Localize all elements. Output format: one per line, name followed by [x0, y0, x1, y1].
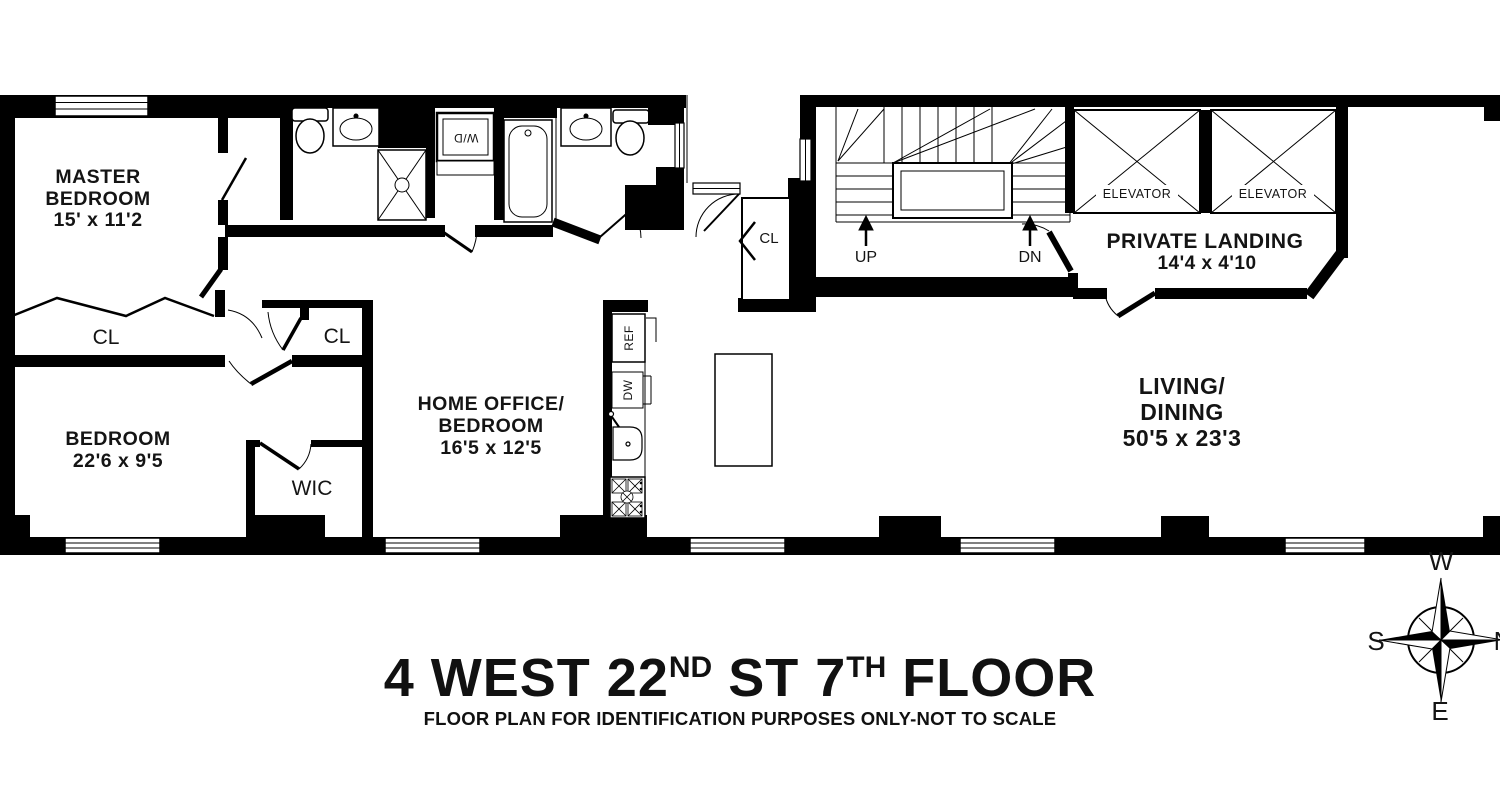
bedroom-door-arc [229, 361, 251, 384]
living-dining-label-1: LIVING/ [1139, 373, 1226, 399]
elevator-right-label: ELEVATOR [1239, 187, 1308, 201]
entry-closet-label: CL [759, 230, 778, 247]
stairs-down-label: DN [1018, 249, 1041, 266]
stair-window [800, 139, 811, 181]
left-closet-label: CL [93, 326, 120, 349]
stairs: UP DN [800, 107, 1072, 297]
bedroom: BEDROOM 22'6 x 9'5 [65, 361, 292, 472]
floor-plan-page: MASTER BEDROOM 15' x 11'2 [0, 0, 1500, 800]
window-south-1 [65, 538, 160, 553]
elevator-chamfer-wall [1309, 252, 1342, 296]
stove-icon [610, 477, 645, 518]
outer-walls [0, 95, 1500, 555]
bedroom-dims: 22'6 x 9'5 [73, 450, 163, 472]
entry-sidelight-window [675, 123, 684, 168]
kitchen-sink-icon [609, 412, 643, 461]
hall-closet-label: CL [324, 325, 351, 348]
private-landing-label: PRIVATE LANDING [1107, 230, 1304, 253]
title-part-2: ST 7 [712, 648, 846, 708]
title-sup-th: TH [846, 651, 886, 684]
bathtub-icon [504, 120, 552, 222]
hall-closet-door-leaf [283, 318, 301, 350]
home-office-label-1: HOME OFFICE/ [418, 393, 565, 415]
entry-door-leaf [704, 194, 739, 231]
entry: CL [625, 95, 816, 312]
closet-accordion-doors [12, 298, 214, 316]
master-bath-door-leaf [222, 158, 246, 200]
stair-landing-rect [893, 163, 1012, 218]
washer-dryer-label: W/D [454, 131, 479, 145]
toilet-icon [292, 108, 328, 153]
window-south-5 [1285, 538, 1365, 553]
kitchen: REF DW [603, 300, 656, 518]
wic-door-arc [299, 444, 311, 469]
living-dining: LIVING/ DINING 50'5 x 23'3 [1123, 373, 1242, 451]
stair-corridor-door-leaf [1049, 232, 1071, 271]
entry-threshold [693, 183, 740, 194]
bedroom-door-leaf [251, 361, 292, 384]
master-bedroom: MASTER BEDROOM 15' x 11'2 [45, 118, 246, 297]
window-top-master [55, 96, 148, 116]
refrigerator-label: REF [622, 325, 636, 351]
up-arrow-icon [859, 216, 873, 246]
window-south-2 [385, 538, 480, 553]
window-south-3 [690, 538, 785, 553]
compass-north-label: N [1494, 626, 1500, 656]
living-dining-label-2: DINING [1140, 399, 1224, 425]
home-office-label-2: BEDROOM [438, 415, 543, 437]
shower-icon [378, 150, 426, 220]
wic-label: WIC [292, 477, 333, 500]
down-arrow-icon [1023, 216, 1037, 246]
sink-icon [333, 108, 379, 146]
master-bedroom-label-2: BEDROOM [45, 188, 150, 210]
window-south-4 [960, 538, 1055, 553]
hall-closet-door-arc [268, 312, 283, 350]
home-office: HOME OFFICE/ BEDROOM 16'5 x 12'5 [418, 393, 565, 459]
home-office-dims: 16'5 x 12'5 [440, 437, 542, 459]
title-sup-nd: ND [669, 651, 712, 684]
landing-door-leaf [1118, 293, 1155, 316]
dishwasher-label: DW [621, 379, 635, 400]
page-subtitle: FLOOR PLAN FOR IDENTIFICATION PURPOSES O… [0, 708, 1480, 730]
toilet-icon [613, 110, 649, 155]
sink-icon [561, 108, 611, 146]
compass-west-label: W [1429, 546, 1454, 576]
kitchen-island [715, 354, 772, 466]
private-landing: PRIVATE LANDING 14'4 x 4'10 [1068, 230, 1307, 316]
bathroom2-angled-wall [553, 222, 600, 240]
bedroom-label: BEDROOM [65, 428, 170, 450]
laundry-door-leaf [443, 232, 472, 252]
wic-door-leaf [260, 443, 299, 469]
master-bathroom [225, 108, 445, 237]
title-part-1: 4 WEST 22 [384, 648, 669, 708]
master-bedroom-label-1: MASTER [55, 166, 140, 188]
stairs-up-label: UP [855, 249, 877, 266]
master-bedroom-dims: 15' x 11'2 [53, 209, 142, 231]
page-title: 4 WEST 22ND ST 7TH FLOOR [0, 650, 1480, 707]
vestibule-door-arc [228, 310, 262, 338]
elevator-left-label: ELEVATOR [1103, 187, 1172, 201]
living-dining-dims: 50'5 x 23'3 [1123, 425, 1242, 451]
entry-closet: CL [740, 198, 790, 300]
title-part-3: FLOOR [886, 648, 1096, 708]
private-landing-dims: 14'4 x 4'10 [1157, 253, 1256, 274]
